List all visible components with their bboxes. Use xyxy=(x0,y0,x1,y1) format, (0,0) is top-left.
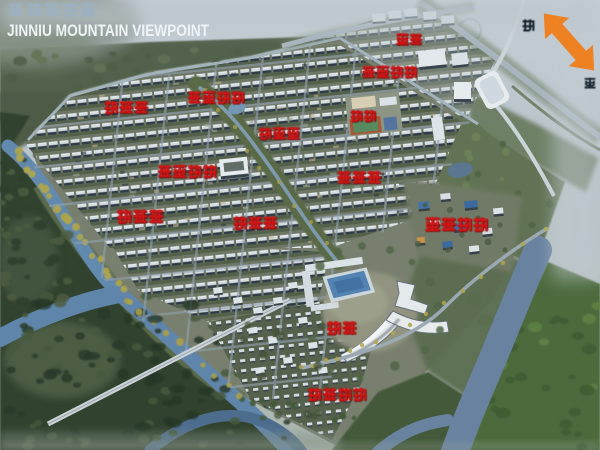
svg-text:JINNIU MOUNTAIN VIEWPOINT: JINNIU MOUNTAIN VIEWPOINT xyxy=(7,22,209,40)
